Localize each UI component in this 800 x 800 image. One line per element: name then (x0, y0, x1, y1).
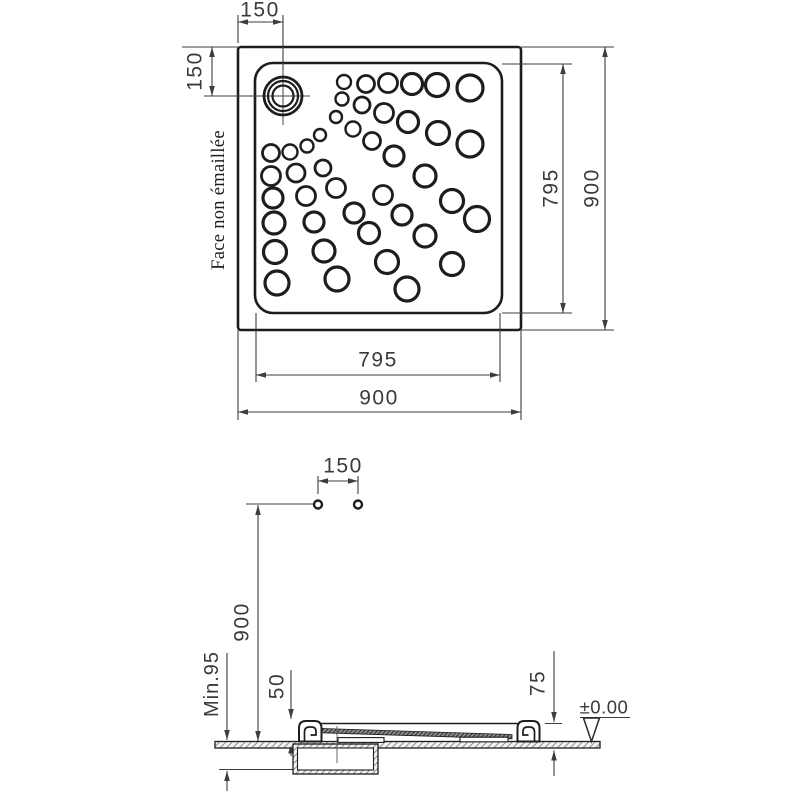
drain-symbol (256, 67, 310, 125)
anti-slip-bump (301, 140, 314, 153)
anti-slip-bump (264, 241, 287, 264)
anti-slip-bump (414, 225, 436, 247)
dim-label-right-795: 795 (540, 168, 563, 208)
datum-triangle-icon (584, 718, 600, 742)
anti-slip-bump (314, 129, 326, 141)
screw-marker (354, 501, 362, 509)
anti-slip-bump (457, 75, 483, 101)
anti-slip-bump (426, 74, 449, 97)
bump-pattern (262, 74, 490, 302)
dim-drain-offset-left: 150 (182, 47, 262, 96)
dim-label-50: 50 (266, 673, 289, 699)
anti-slip-bump (327, 179, 346, 198)
anti-slip-bump (374, 186, 393, 205)
anti-slip-bump (287, 164, 305, 182)
anti-slip-bump (263, 212, 285, 234)
dim-label-min95: Min.95 (201, 651, 223, 717)
tray-left-rim (299, 721, 322, 742)
shower-tray-technical-drawing: Face non émaillée 150 150 795 900 (0, 0, 800, 800)
anti-slip-bump (358, 76, 375, 93)
dim-label-datum: ±0.00 (580, 697, 629, 718)
dim-label-section-150: 150 (323, 455, 363, 478)
underside-cavity-left (338, 738, 384, 743)
anti-slip-bump (354, 97, 370, 113)
dim-label-section-900: 900 (231, 602, 254, 642)
anti-slip-bump (315, 160, 331, 176)
dim-inner-height: 795 (502, 64, 572, 313)
dim-label-top-150: 150 (240, 0, 280, 22)
anti-slip-bump (427, 122, 450, 145)
anti-slip-bump (265, 271, 289, 295)
anti-slip-bump (283, 145, 298, 160)
anti-slip-bump (457, 131, 483, 157)
anti-slip-bump (384, 146, 404, 166)
dim-outer-height: 900 (521, 47, 614, 330)
underside-cavity-right (460, 737, 508, 742)
anti-slip-bump (392, 205, 412, 225)
anti-slip-bump (263, 188, 283, 208)
anti-slip-bump (346, 122, 361, 137)
dim-section-height: 900 (231, 505, 259, 741)
anti-slip-bump (379, 74, 398, 93)
anti-slip-bump (465, 207, 490, 232)
dim-label-right-900: 900 (581, 168, 604, 208)
floor-slab (215, 742, 600, 749)
anti-slip-bump (313, 240, 335, 262)
drain-recess-box (293, 744, 378, 774)
dim-recess-depth: Min.95 (201, 651, 294, 791)
anti-slip-bump (297, 187, 316, 206)
anti-slip-bump (402, 74, 423, 95)
dim-label-bottom-795: 795 (358, 349, 398, 372)
dim-drain-offset-top: 150 (238, 0, 283, 70)
dim-screw-spacing: 150 (318, 455, 363, 495)
tray-right-rim-detail (523, 727, 535, 742)
section-view: 150 900 Min.95 50 75 (201, 455, 630, 792)
anti-slip-bump (304, 212, 324, 232)
anti-slip-bump (330, 111, 342, 123)
anti-slip-bump (263, 145, 280, 162)
screw-marker (314, 501, 322, 509)
anti-slip-bump (395, 277, 419, 301)
anti-slip-bump (441, 253, 464, 276)
dim-inner-width: 795 (256, 313, 500, 382)
anti-slip-bump (344, 203, 364, 223)
anti-slip-bump (359, 223, 380, 244)
dim-label-left-150: 150 (184, 51, 207, 91)
face-non-emaillee-label: Face non émaillée (209, 130, 229, 270)
anti-slip-bump (414, 165, 436, 187)
dim-label-bottom-900: 900 (359, 387, 399, 410)
anti-slip-bump (337, 75, 351, 89)
anti-slip-bump (398, 112, 419, 133)
top-view: Face non émaillée 150 150 795 900 (182, 0, 614, 420)
dim-label-75: 75 (527, 670, 550, 696)
anti-slip-bump (441, 190, 464, 213)
dim-edge-height: 75 (527, 651, 563, 776)
tray-right-rim (518, 721, 540, 742)
screw-markers (314, 501, 362, 509)
anti-slip-bump (262, 167, 281, 186)
anti-slip-bump (375, 104, 394, 123)
technical-drawing-page: Face non émaillée 150 150 795 900 (0, 0, 800, 800)
anti-slip-bump (376, 251, 399, 274)
anti-slip-bump (336, 93, 349, 106)
anti-slip-bump (325, 267, 349, 291)
floor-datum: ±0.00 (580, 697, 630, 742)
tray-left-rim-detail (305, 727, 317, 742)
anti-slip-bump (364, 133, 381, 150)
